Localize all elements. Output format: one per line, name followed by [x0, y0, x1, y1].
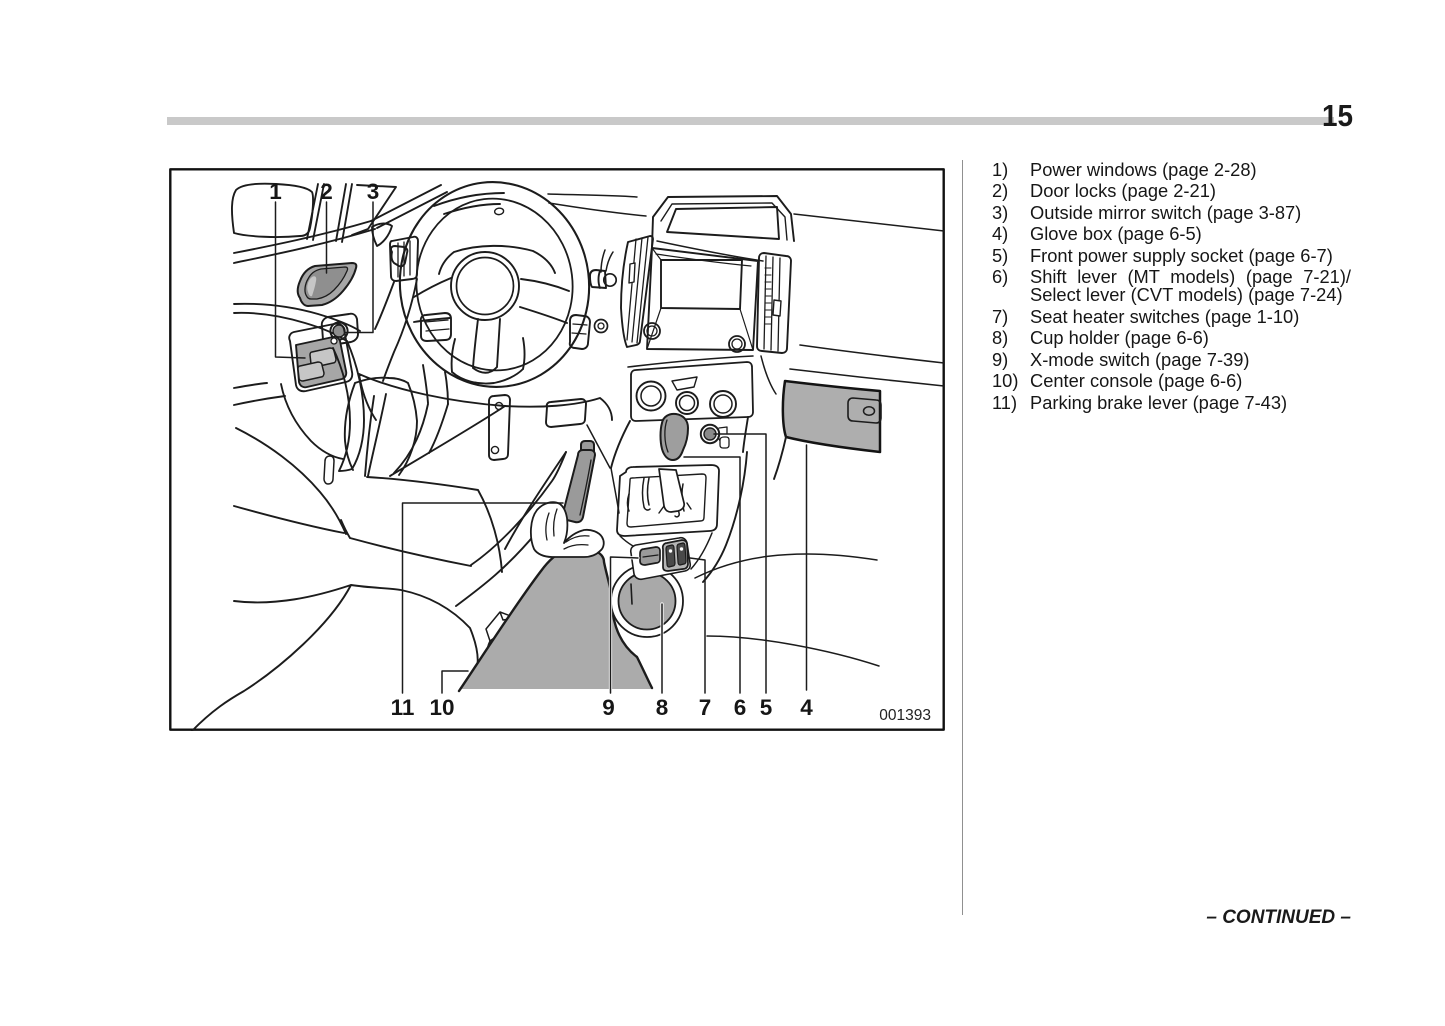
- svg-text:5: 5: [760, 695, 773, 720]
- svg-text:7: 7: [699, 695, 712, 720]
- svg-text:3: 3: [367, 179, 380, 204]
- svg-text:6: 6: [734, 695, 747, 720]
- svg-text:8: 8: [656, 695, 669, 720]
- svg-text:10: 10: [429, 695, 454, 720]
- svg-text:9: 9: [602, 695, 615, 720]
- svg-text:1: 1: [269, 179, 282, 204]
- svg-text:4: 4: [800, 695, 813, 720]
- svg-text:11: 11: [391, 695, 415, 720]
- svg-text:001393: 001393: [879, 707, 931, 724]
- svg-text:2: 2: [320, 179, 333, 204]
